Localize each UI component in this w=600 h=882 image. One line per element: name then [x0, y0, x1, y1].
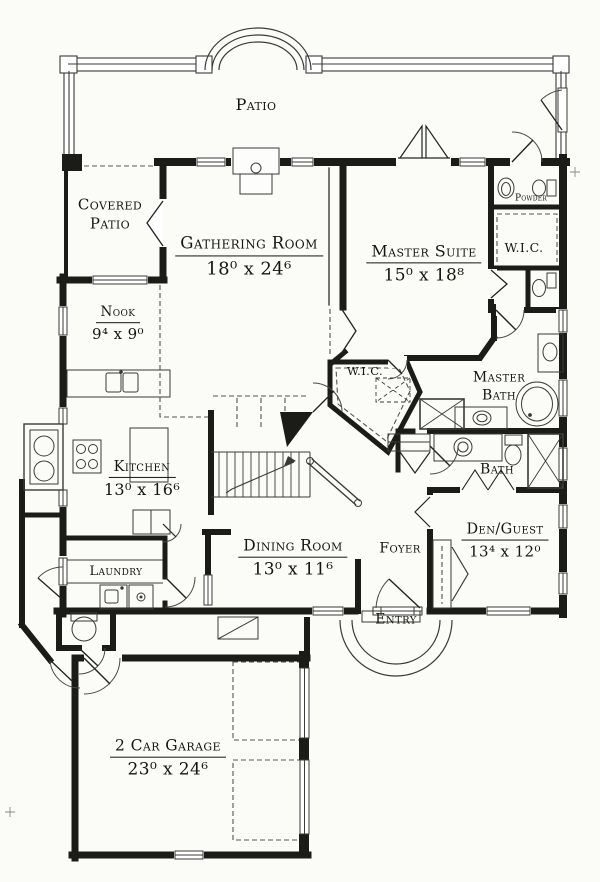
window	[59, 558, 67, 585]
kitchen-counter	[67, 370, 170, 397]
room-label-dining-room: Dining Room 13⁰ x 11⁶	[238, 537, 347, 582]
window	[93, 276, 147, 284]
garage-door-ceiling-line	[233, 760, 301, 840]
room-label-foyer: Foyer	[379, 540, 420, 558]
room-label-patio: Patio	[236, 95, 277, 115]
stairs	[211, 452, 362, 507]
stair-wedge-wall	[280, 412, 313, 447]
floor-plan-sheet: Patio Covered Patio Gathering Room 18⁰ x…	[0, 0, 600, 882]
door-entry	[376, 579, 420, 608]
door-laundry	[165, 577, 195, 607]
room-label-covered-patio: Covered Patio	[58, 195, 162, 233]
window	[460, 158, 485, 166]
room-label-gathering-room: Gathering Room 18⁰ x 24⁶	[175, 233, 323, 280]
toilet-room-fixture	[71, 613, 97, 641]
fireplace	[233, 148, 279, 194]
window	[59, 490, 67, 506]
patio-railing	[60, 56, 569, 163]
washer	[100, 585, 127, 609]
window	[292, 158, 313, 166]
door-master-double	[341, 308, 356, 354]
room-label-master-bath: Master Bath	[473, 370, 525, 405]
window	[559, 505, 567, 528]
stair-direction-arrow	[284, 456, 296, 466]
floor-plan-drawing	[0, 0, 600, 882]
window	[559, 310, 567, 332]
wc-toilet	[533, 273, 557, 297]
planter-box	[218, 617, 258, 639]
window	[313, 607, 343, 615]
garage-door-ceiling-line	[233, 662, 301, 740]
bath-vanity	[434, 434, 502, 461]
stove-cooktop	[73, 440, 101, 473]
room-label-wic-master: W.I.C.	[504, 240, 543, 256]
window	[197, 158, 225, 166]
patio-arch	[205, 28, 311, 70]
garage-vent	[175, 851, 203, 859]
wic-shelf	[376, 378, 410, 402]
room-label-powder: Powder	[515, 193, 547, 204]
door-dining-hall	[204, 575, 212, 605]
room-label-entry: Entry	[375, 611, 416, 629]
powder-sink	[498, 178, 514, 198]
room-label-bath: Bath	[480, 461, 514, 479]
dryer	[129, 585, 153, 609]
room-label-den-guest: Den/Guest 13⁴ x 12⁰	[462, 521, 549, 562]
window	[559, 573, 567, 594]
masterbath-shower	[420, 399, 464, 429]
room-label-master-suite: Master Suite 15⁰ x 18⁸	[366, 241, 481, 286]
room-label-laundry: Laundry	[89, 564, 142, 580]
room-label-wic-hall: W.I.C.	[347, 364, 383, 378]
window	[59, 408, 67, 424]
door-basement-stairs	[313, 383, 342, 412]
room-label-garage: 2 Car Garage 23⁰ x 24⁶	[110, 737, 226, 782]
wall-master-bottom	[407, 338, 494, 358]
room-label-kitchen: Kitchen 13⁰ x 16⁶	[104, 458, 180, 500]
french-door-master-patio	[398, 126, 450, 158]
refrigerator	[133, 510, 170, 534]
masterbath-vanity	[455, 407, 507, 429]
window	[487, 607, 530, 615]
room-label-nook: Nook 9⁴ x 9⁰	[92, 304, 144, 344]
window	[59, 307, 67, 335]
window	[559, 380, 567, 416]
